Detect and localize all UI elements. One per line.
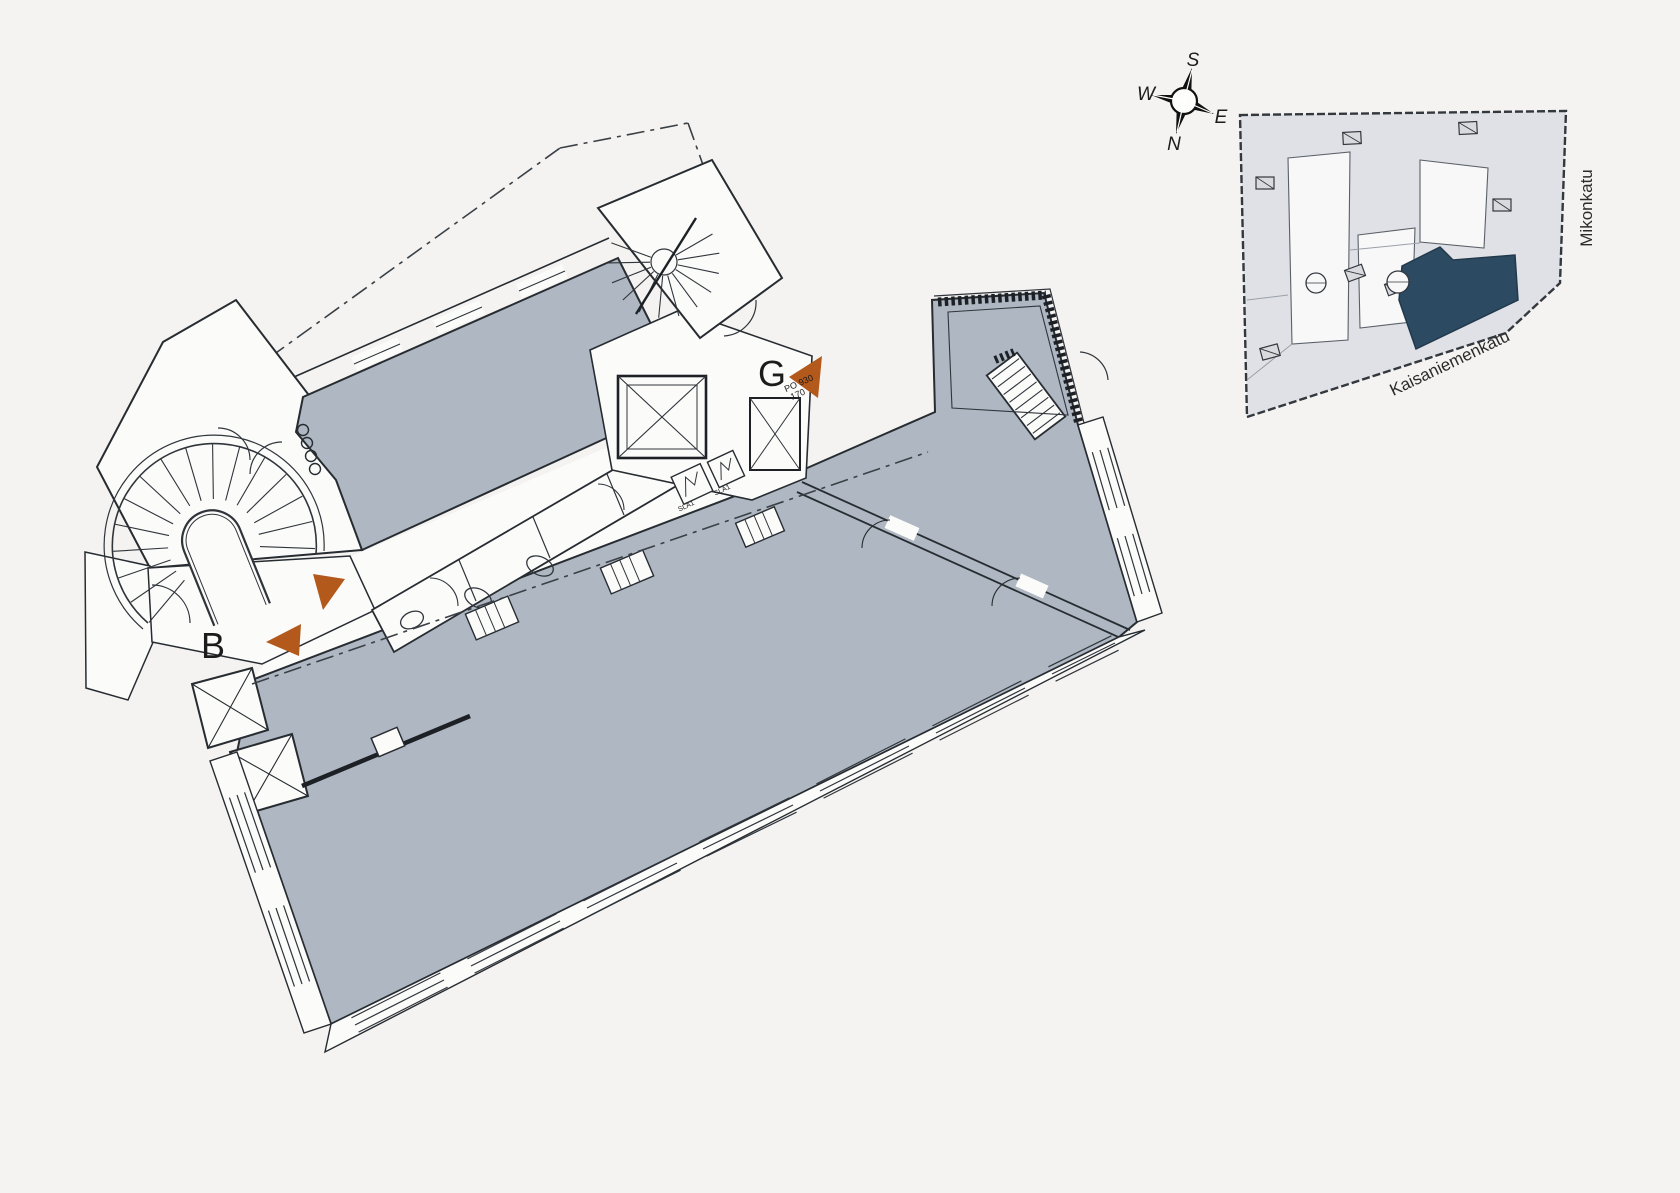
- stairwell-g-label: G: [758, 353, 786, 394]
- compass-north-label: N: [1167, 134, 1181, 155]
- street-label-mikonkatu: Mikonkatu: [1577, 169, 1596, 246]
- stairwell-b-label: B: [201, 625, 225, 666]
- floor-plan-canvas: SLA1 SLA1: [0, 0, 1680, 1188]
- compass-south-label: S: [1187, 50, 1200, 71]
- compass-east-label: E: [1215, 107, 1228, 128]
- compass-west-label: W: [1137, 84, 1157, 105]
